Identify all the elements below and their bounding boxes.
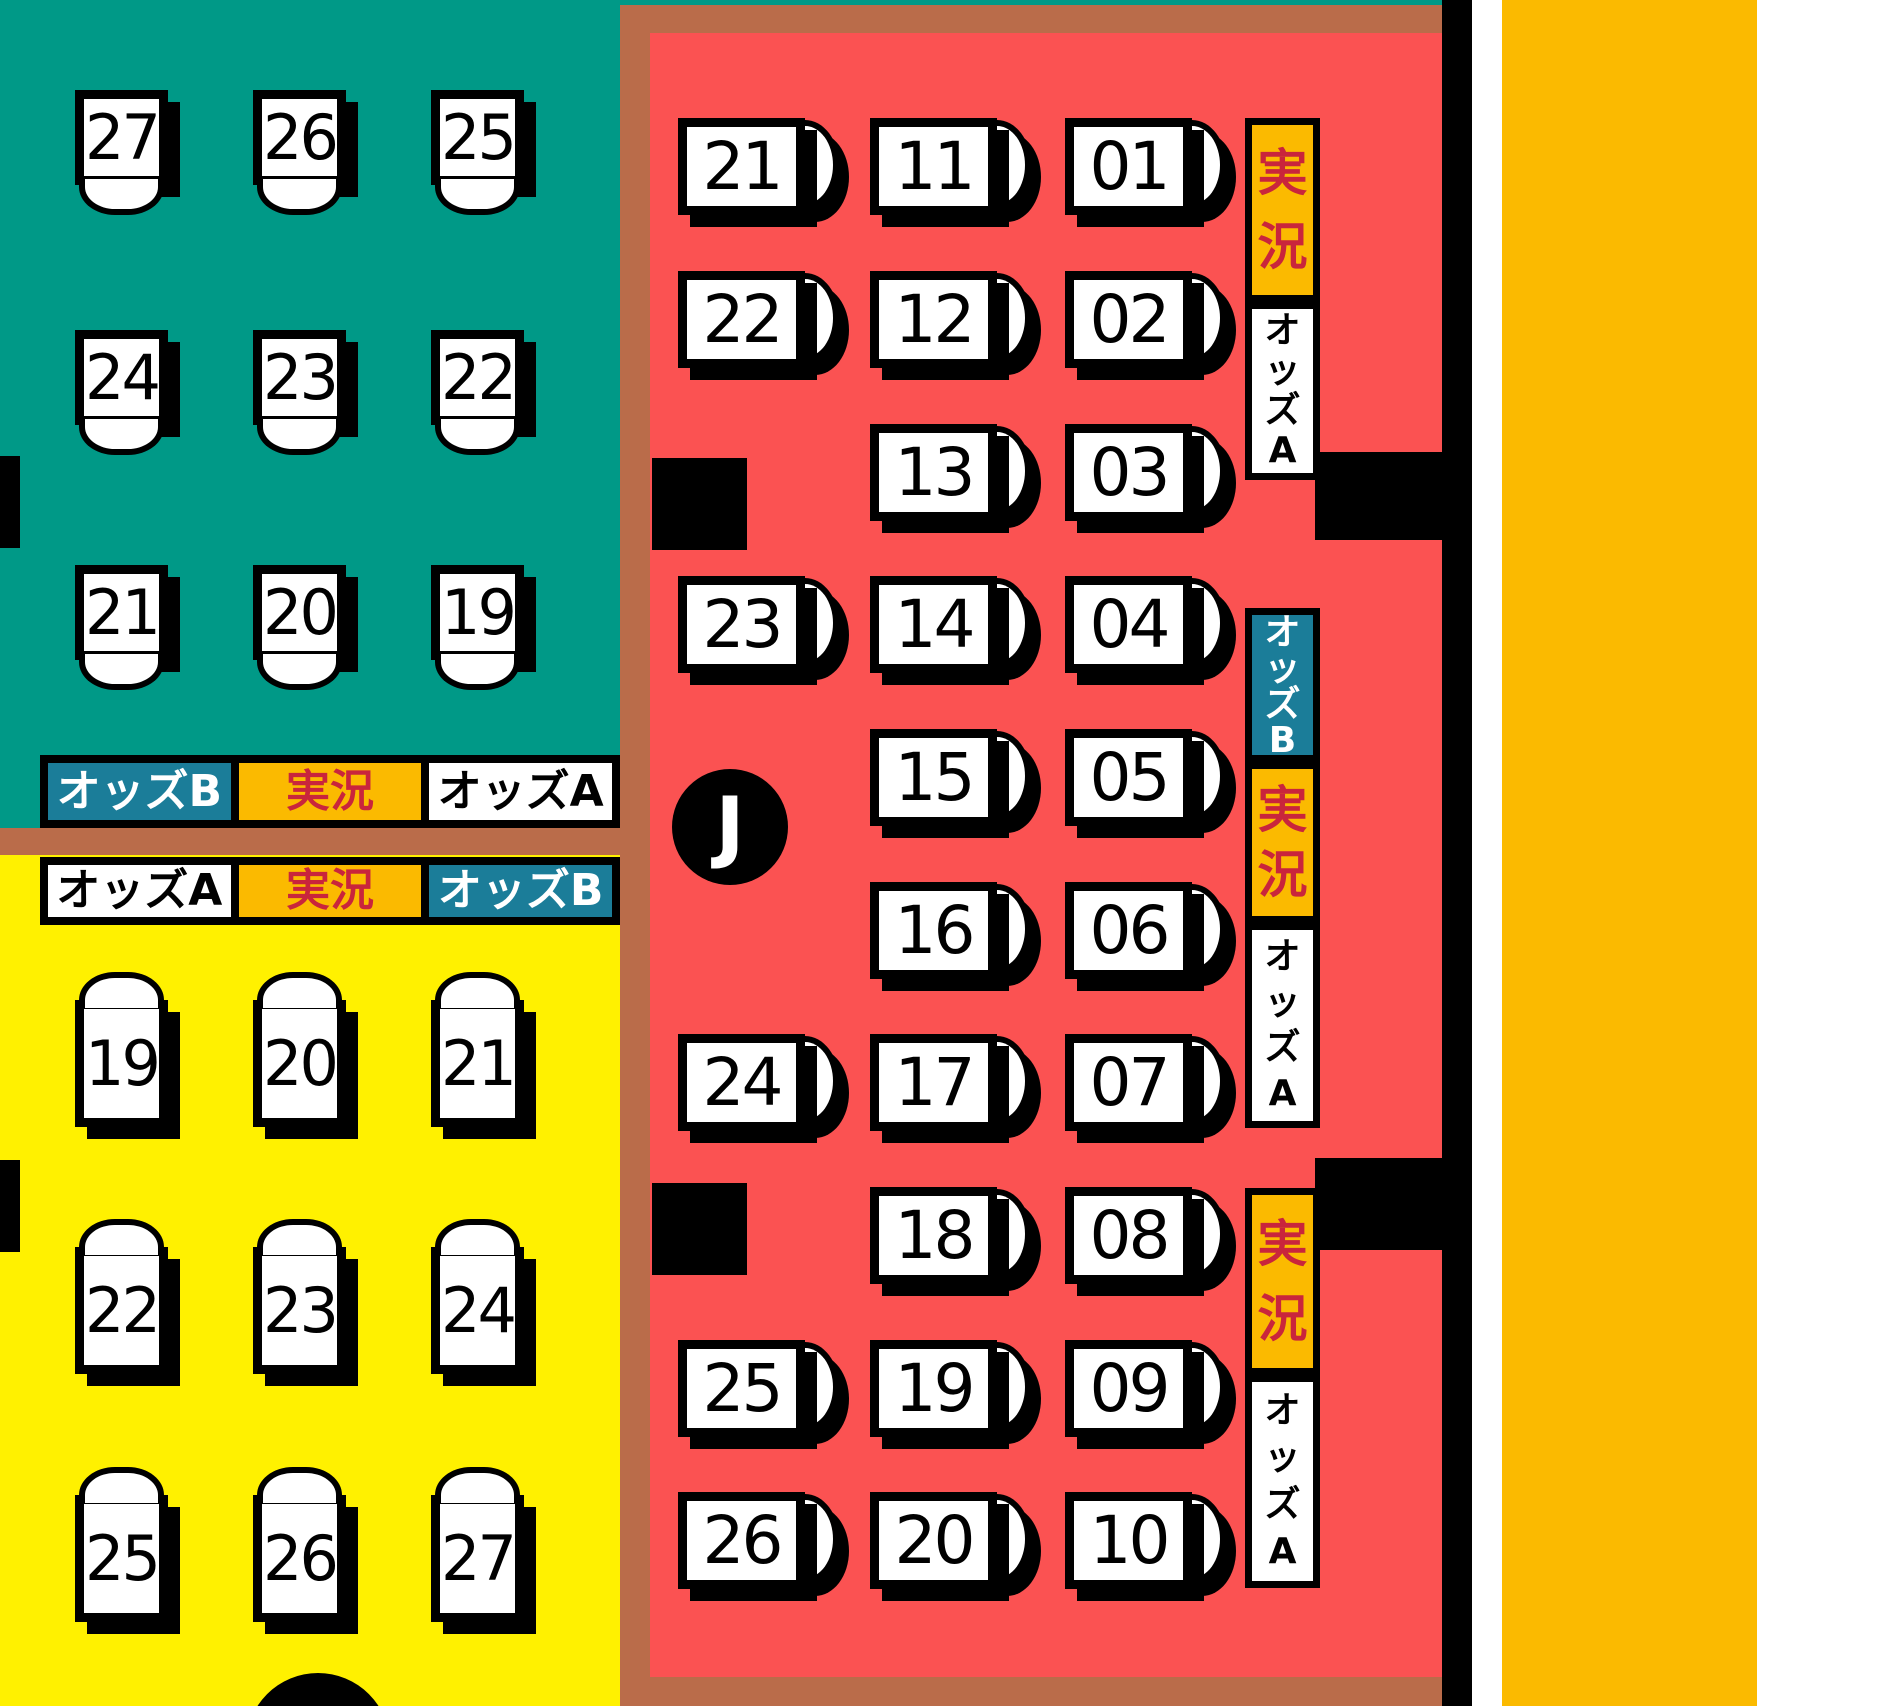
window-number: 21 xyxy=(85,582,158,644)
window-number-plate: 19 xyxy=(870,1340,997,1437)
window-number-plate: 08 xyxy=(1065,1187,1192,1284)
window-number-plate: 21 xyxy=(431,1000,524,1127)
window-number: 18 xyxy=(895,1203,973,1269)
window-number-plate: 16 xyxy=(870,882,997,979)
sign-live-vertical: 実況 xyxy=(1245,118,1320,302)
window-number: 15 xyxy=(895,745,973,811)
sign-char: A xyxy=(1269,1076,1297,1112)
sign-oddsB: オッズB xyxy=(429,865,612,917)
sign-char: 況 xyxy=(1258,1294,1308,1344)
sign-char: オ xyxy=(1264,939,1300,975)
window-number: 16 xyxy=(895,898,973,964)
window-number: 02 xyxy=(1090,287,1168,353)
window-number: 26 xyxy=(703,1508,781,1574)
sign-char: ッ xyxy=(1264,985,1300,1021)
window-number: 04 xyxy=(1090,592,1168,658)
window-number-plate: 22 xyxy=(678,271,805,368)
window-number-plate: 23 xyxy=(678,576,805,673)
sign-char: ズ xyxy=(1264,1030,1300,1066)
window-number: 19 xyxy=(85,1033,158,1095)
window-number-plate: 14 xyxy=(870,576,997,673)
window-number-plate: 25 xyxy=(431,90,524,185)
window-number: 21 xyxy=(441,1033,514,1095)
window-number-plate: 19 xyxy=(75,1000,168,1127)
window-number-plate: 06 xyxy=(1065,882,1192,979)
sign-oddsB: オッズB xyxy=(48,763,231,820)
window-number-plate: 05 xyxy=(1065,729,1192,826)
window-number: 22 xyxy=(703,287,781,353)
sign-char: 実 xyxy=(1258,785,1308,835)
window-number-plate: 09 xyxy=(1065,1340,1192,1437)
sign-char: ッ xyxy=(1264,353,1300,389)
window-number: 24 xyxy=(703,1050,781,1116)
orange-concourse-bar xyxy=(1502,0,1757,1706)
sign-text: オッズA xyxy=(1252,1382,1313,1581)
window-number-plate: 10 xyxy=(1065,1492,1192,1589)
sign-live-vertical: 実況 xyxy=(1245,1188,1320,1375)
sign-text: 実況 xyxy=(1252,1195,1313,1368)
sign-oddsA-vertical: オッズA xyxy=(1245,302,1320,480)
section-letter-j: J xyxy=(715,788,744,866)
window-number: 05 xyxy=(1090,745,1168,811)
sign-char: A xyxy=(1269,1534,1297,1570)
window-number: 25 xyxy=(441,107,514,169)
window-number: 24 xyxy=(85,347,158,409)
window-number-plate: 20 xyxy=(870,1492,997,1589)
window-number: 10 xyxy=(1090,1508,1168,1574)
window-number: 03 xyxy=(1090,440,1168,506)
window-number: 08 xyxy=(1090,1203,1168,1269)
sign-char: ズ xyxy=(1264,393,1300,429)
sign-char: 実 xyxy=(1258,148,1308,198)
window-number: 01 xyxy=(1090,134,1168,200)
window-number: 22 xyxy=(441,347,514,409)
window-number-plate: 22 xyxy=(431,330,524,425)
sign-char: オ xyxy=(1264,313,1300,349)
sign-char: オ xyxy=(1264,1393,1300,1429)
window-number-plate: 04 xyxy=(1065,576,1192,673)
window-number: 20 xyxy=(263,582,336,644)
floor-map: 2726252423222120191920212223242526272122… xyxy=(0,0,1880,1706)
window-number: 13 xyxy=(895,440,973,506)
window-number-plate: 27 xyxy=(75,90,168,185)
window-number: 22 xyxy=(85,1280,158,1342)
window-number: 19 xyxy=(895,1356,973,1422)
wall-bar xyxy=(1442,0,1472,1706)
pillar-red-left-2 xyxy=(652,1183,747,1275)
window-number: 17 xyxy=(895,1050,973,1116)
sign-live: 実況 xyxy=(239,865,422,917)
window-number-plate: 03 xyxy=(1065,424,1192,521)
corridor-strip xyxy=(0,828,620,855)
signage-bar-top: オッズB実況オッズA xyxy=(40,755,620,828)
sign-oddsA: オッズA xyxy=(48,865,231,917)
window-number-plate: 19 xyxy=(431,565,524,660)
window-number: 23 xyxy=(263,1280,336,1342)
sign-text: オッズA xyxy=(1252,930,1313,1121)
window-number: 09 xyxy=(1090,1356,1168,1422)
window-number-plate: 20 xyxy=(253,565,346,660)
window-number-plate: 25 xyxy=(75,1495,168,1622)
sign-char: B xyxy=(1269,723,1296,759)
window-number-plate: 17 xyxy=(870,1034,997,1131)
window-number-plate: 01 xyxy=(1065,118,1192,215)
sign-text: 実況 xyxy=(1252,769,1313,916)
sign-text: 実況 xyxy=(1252,125,1313,295)
window-number-plate: 23 xyxy=(253,1247,346,1374)
window-number: 25 xyxy=(703,1356,781,1422)
window-number-plate: 26 xyxy=(253,1495,346,1622)
window-number-plate: 18 xyxy=(870,1187,997,1284)
pillar-red-left-1 xyxy=(652,458,747,550)
window-number-plate: 21 xyxy=(75,565,168,660)
window-number: 27 xyxy=(441,1528,514,1590)
window-number-plate: 12 xyxy=(870,271,997,368)
pillar-red-right-1 xyxy=(1315,452,1442,540)
window-number: 06 xyxy=(1090,898,1168,964)
window-number-plate: 22 xyxy=(75,1247,168,1374)
sign-live: 実況 xyxy=(239,763,422,820)
window-number: 25 xyxy=(85,1528,158,1590)
section-circle-j: J xyxy=(672,769,788,885)
window-number: 07 xyxy=(1090,1050,1168,1116)
window-number: 19 xyxy=(441,582,514,644)
window-number: 11 xyxy=(895,134,973,200)
door-marker-yellow-left xyxy=(0,1160,20,1252)
window-number: 14 xyxy=(895,592,973,658)
window-number: 26 xyxy=(263,107,336,169)
window-number: 23 xyxy=(263,347,336,409)
signage-bar-bottom: オッズA実況オッズB xyxy=(40,857,620,925)
window-number-plate: 21 xyxy=(678,118,805,215)
sign-text: オッズB xyxy=(1252,615,1313,755)
window-number: 12 xyxy=(895,287,973,353)
window-number: 20 xyxy=(263,1033,336,1095)
window-number-plate: 23 xyxy=(253,330,346,425)
window-number-plate: 24 xyxy=(431,1247,524,1374)
sign-oddsB-vertical: オッズB xyxy=(1245,608,1320,762)
sign-char: 実 xyxy=(1258,1219,1308,1269)
sign-oddsA: オッズA xyxy=(429,763,612,820)
window-number-plate: 25 xyxy=(678,1340,805,1437)
sign-oddsA-vertical: オッズA xyxy=(1245,1375,1320,1588)
sign-text: オッズA xyxy=(1252,309,1313,473)
door-marker-teal-left xyxy=(0,456,20,548)
window-number-plate: 11 xyxy=(870,118,997,215)
window-number-plate: 27 xyxy=(431,1495,524,1622)
sign-char: ッ xyxy=(1264,651,1300,687)
sign-char: ッ xyxy=(1264,1440,1300,1476)
window-number: 26 xyxy=(263,1528,336,1590)
window-number: 20 xyxy=(895,1508,973,1574)
window-number-plate: 26 xyxy=(253,90,346,185)
sign-char: 況 xyxy=(1258,850,1308,900)
sign-char: ズ xyxy=(1264,687,1300,723)
window-number: 23 xyxy=(703,592,781,658)
window-number-plate: 26 xyxy=(678,1492,805,1589)
window-number-plate: 24 xyxy=(75,330,168,425)
window-number: 27 xyxy=(85,107,158,169)
window-number-plate: 02 xyxy=(1065,271,1192,368)
sign-char: オ xyxy=(1264,615,1300,651)
window-number: 24 xyxy=(441,1280,514,1342)
window-number-plate: 13 xyxy=(870,424,997,521)
sign-live-vertical: 実況 xyxy=(1245,762,1320,923)
window-number-plate: 07 xyxy=(1065,1034,1192,1131)
sign-char: ズ xyxy=(1264,1487,1300,1523)
sign-char: 況 xyxy=(1258,222,1308,272)
window-number: 21 xyxy=(703,134,781,200)
window-number-plate: 24 xyxy=(678,1034,805,1131)
window-number-plate: 15 xyxy=(870,729,997,826)
window-number-plate: 20 xyxy=(253,1000,346,1127)
sign-oddsA-vertical: オッズA xyxy=(1245,923,1320,1128)
sign-char: A xyxy=(1269,433,1297,469)
pillar-red-right-2 xyxy=(1315,1158,1442,1250)
